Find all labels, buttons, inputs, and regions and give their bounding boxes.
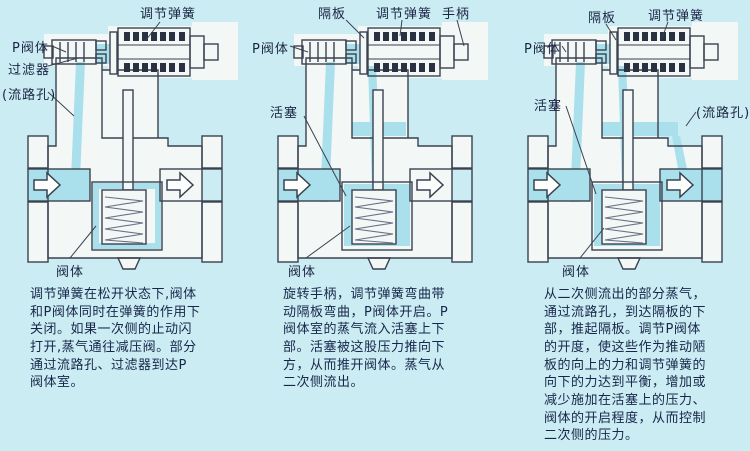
valve-diagram-panel-3: 隔板 调节弹簧 P阀体 活塞 (流路孔) 阀体 从二次侧流出的部分蒸气， 通过流… [500,0,750,451]
label-flow-hole: (流路孔) [696,102,750,121]
label-p-valve: P阀体 [252,38,289,57]
label-flow-hole: (流路孔) [2,84,56,103]
label-piston: 活塞 [270,102,298,121]
panel-3-description: 从二次侧流出的部分蒸气， 通过流路孔，到达隔板的下 部，推起隔板。调节P阀体 的… [500,286,750,445]
panel-2-description: 旋转手柄，调节弹簧弯曲带 动隔板弯曲，P阀体开启。P 阀体室的蒸气流入活塞上下 … [250,286,500,392]
label-valve-body: 阀体 [56,261,84,280]
pressure-reducing-valve-diagram-page: 调节弹簧 P阀体 过滤器 (流路孔) 阀体 调节弹簧在松开状态下,阀体 和P阀体… [0,0,750,451]
label-diaphragm: 隔板 [318,3,346,22]
label-adjust-spring: 调节弹簧 [140,3,196,22]
label-adjust-spring: 调节弹簧 [648,5,704,24]
label-piston: 活塞 [534,95,562,114]
label-diaphragm: 隔板 [588,7,616,26]
valve-diagram-panel-2: 隔板 调节弹簧 手柄 P阀体 活塞 阀体 旋转手柄，调节弹簧弯曲带 动隔板弯曲，… [250,0,500,451]
panel-1-description: 调节弹簧在松开状态下,阀体 和P阀体同时在弹簧的作用下 关闭。如果一次侧的止动闪… [0,286,250,392]
label-valve-body: 阀体 [562,261,590,280]
label-p-valve: P阀体 [12,37,49,56]
valve-diagram-panel-1: 调节弹簧 P阀体 过滤器 (流路孔) 阀体 调节弹簧在松开状态下,阀体 和P阀体… [0,0,250,451]
label-valve-body: 阀体 [288,261,316,280]
label-p-valve: P阀体 [524,38,561,57]
label-adjust-spring: 调节弹簧 [376,3,432,22]
label-filter: 过滤器 [8,59,50,78]
label-handle: 手柄 [442,3,470,22]
